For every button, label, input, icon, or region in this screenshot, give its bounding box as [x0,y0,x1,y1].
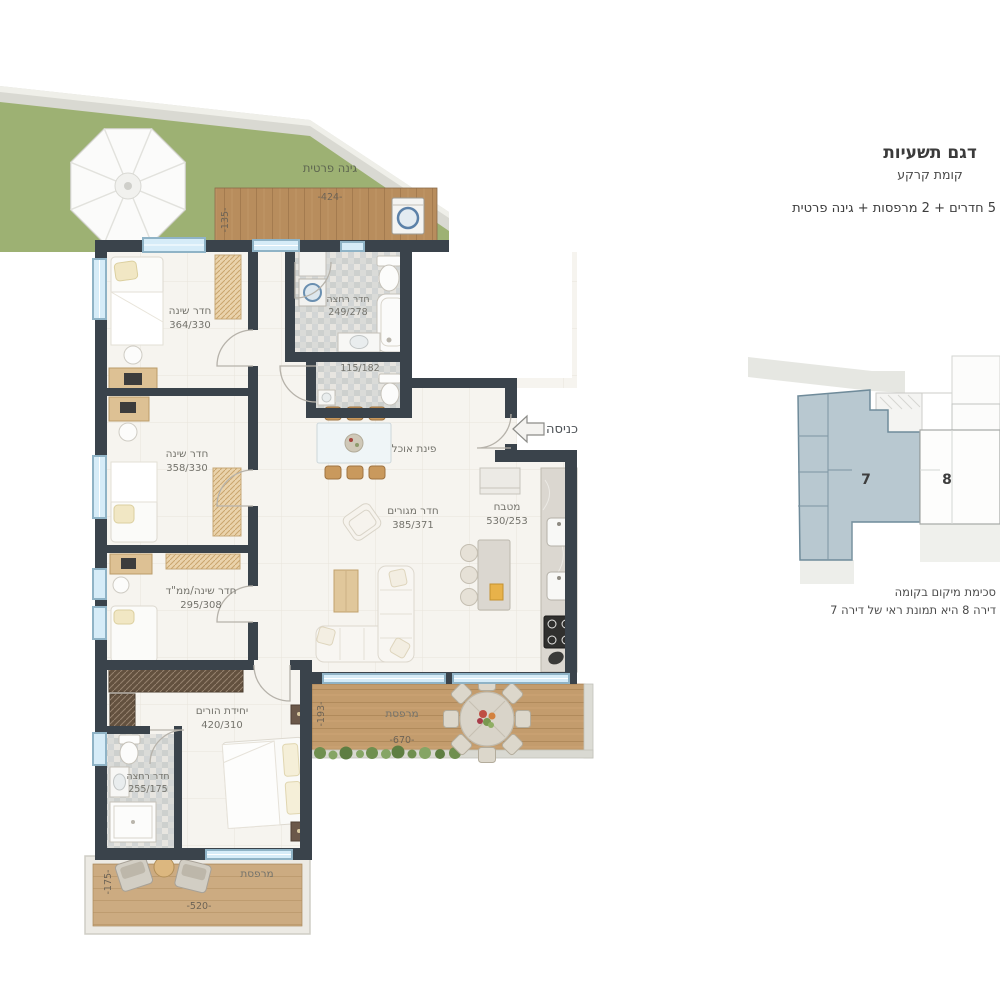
toilet-bowl [120,742,138,764]
locator-diagram: 7 8 [748,356,1000,584]
window [92,455,107,519]
page-subtitle: קומת קרקע [868,167,992,182]
pillow [285,781,302,814]
pillow [114,505,134,523]
laptop [120,402,136,413]
pillow [282,743,299,776]
balcony-right-railing-side [584,684,593,758]
throw-pillow [316,626,336,646]
bathroom1-label: חדר רחצה [326,294,369,305]
sliding-door-window [452,673,570,684]
pillow [114,261,138,282]
bedroom3-label: חדר שינה/ממ"ד [165,585,236,597]
balcony-right-width-dim: -670- [390,735,415,746]
throw-pillow [389,569,408,588]
stool [461,589,478,606]
bedroom3-dims: 295/308 [180,600,222,611]
balcony-right: מרפסת -670- -193- [312,676,593,763]
locator-shadow [800,560,854,584]
master-dims: 420/310 [201,720,243,731]
locator-garden [748,357,905,393]
master-label: יחידת הורים [196,705,249,717]
balcony-right-label: מרפסת [385,708,418,720]
outdoor-dining-set [444,676,531,763]
toilet-bowl [381,383,399,405]
floor-plan-canvas: גינה פרטית -424- -135- [0,0,1000,1000]
chair [113,577,129,593]
kitchen-dims: 530/253 [486,516,528,527]
bedroom2-label: חדר שינה [166,448,209,460]
chair [124,346,142,364]
locator-unit7-number: 7 [861,472,871,488]
window [340,241,365,252]
bedroom1-label: חדר שינה [169,305,212,317]
toilet-bowl [379,265,399,291]
kitchen-cabinet [480,468,520,494]
parasol-umbrella [71,129,186,244]
bathroom1-dims: 249/278 [328,307,367,318]
stool [461,545,478,562]
bathroom2-dims: 255/175 [128,784,167,795]
window [142,237,206,253]
balcony-bottom-depth-dim: -175- [103,870,114,895]
locator-unit8 [920,430,1000,524]
window [92,258,107,320]
washing-machine-icon [392,198,424,234]
living-label: חדר מגורים [387,505,438,517]
stool [461,567,478,584]
bedroom2-dims: 358/330 [166,463,208,474]
locator-neighbor-top [952,356,1000,404]
window [92,568,107,600]
laptop [124,373,142,385]
window [92,732,107,766]
kitchen-label: מטבח [494,501,521,513]
page-title: דגם תשעיות [868,143,992,163]
blanket [222,741,280,828]
locator-unit8-number: 8 [942,472,952,488]
balcony-bottom: מרפסת -520- -175- [85,856,310,934]
locator-caption-2: דירה 8 היא תמונת ראי של דירה 7 [830,603,996,617]
balcony-bottom-label: מרפסת [240,868,273,880]
locator-caption-1: סכימת מיקום בקומה [895,585,996,599]
blanket [111,292,163,345]
living-dims: 385/371 [392,520,434,531]
blanket [111,462,157,502]
laptop [121,558,136,569]
pillow [114,610,134,624]
cabinet [299,251,326,276]
garden-label: גינה פרטית [303,161,358,175]
bedroom1-dims: 364/330 [169,320,211,331]
chair [119,423,137,441]
locator-unit8-upper [952,404,1000,430]
deck-depth-dim: -135- [220,208,231,233]
dining-label: פינת אוכל [392,443,437,455]
balcony-bottom-width-dim: -520- [187,901,212,912]
entrance-label: כניסה [546,422,578,437]
private-garden: גינה פרטית -424- -135- [0,86,449,252]
balcony-right-depth-dim: -193- [316,702,327,727]
toilet-tank [379,374,401,383]
wc-dims: 115/182 [340,363,379,374]
cutting-board [490,584,503,600]
sliding-door-window [322,673,446,684]
deck-width-dim: -424- [318,192,343,203]
apartment-features: 5 חדרים + 2 מרפסות + גינה פרטית [792,201,996,216]
window [252,239,300,252]
locator-shadow [920,524,1000,562]
window [92,606,107,640]
bathroom2-label: חדר רחצה [126,771,169,782]
floor-plan-page: { "header": { "title": "דגם תשעיות", "su… [0,0,1000,1000]
window [205,849,293,860]
